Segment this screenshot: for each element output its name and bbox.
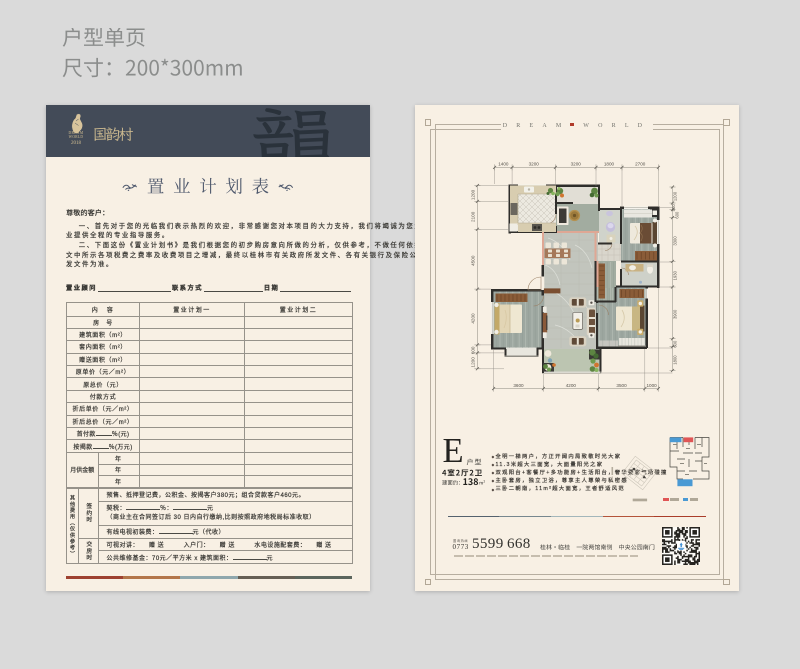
svg-text:600: 600 xyxy=(470,346,475,354)
svg-text:3600: 3600 xyxy=(513,383,524,388)
svg-text:1200: 1200 xyxy=(673,191,678,201)
svg-text:4500: 4500 xyxy=(470,255,475,266)
svg-text:3200: 3200 xyxy=(571,161,582,166)
svg-text:600: 600 xyxy=(675,211,680,219)
svg-text:1400: 1400 xyxy=(498,161,509,166)
svg-text:1200: 1200 xyxy=(470,357,475,368)
svg-text:3200: 3200 xyxy=(529,161,540,166)
svg-text:600: 600 xyxy=(673,340,678,348)
svg-text:3900: 3900 xyxy=(673,309,678,319)
svg-text:1200: 1200 xyxy=(470,189,475,200)
svg-text:2700: 2700 xyxy=(635,161,646,166)
svg-text:2100: 2100 xyxy=(470,211,475,222)
svg-text:1800: 1800 xyxy=(673,355,678,365)
svg-text:1930: 1930 xyxy=(673,270,678,280)
svg-text:4200: 4200 xyxy=(566,383,577,388)
svg-text:1000: 1000 xyxy=(646,383,657,388)
svg-text:3300: 3300 xyxy=(673,236,678,246)
svg-text:4200: 4200 xyxy=(470,313,475,324)
svg-text:1800: 1800 xyxy=(604,161,615,166)
svg-text:3500: 3500 xyxy=(616,383,627,388)
